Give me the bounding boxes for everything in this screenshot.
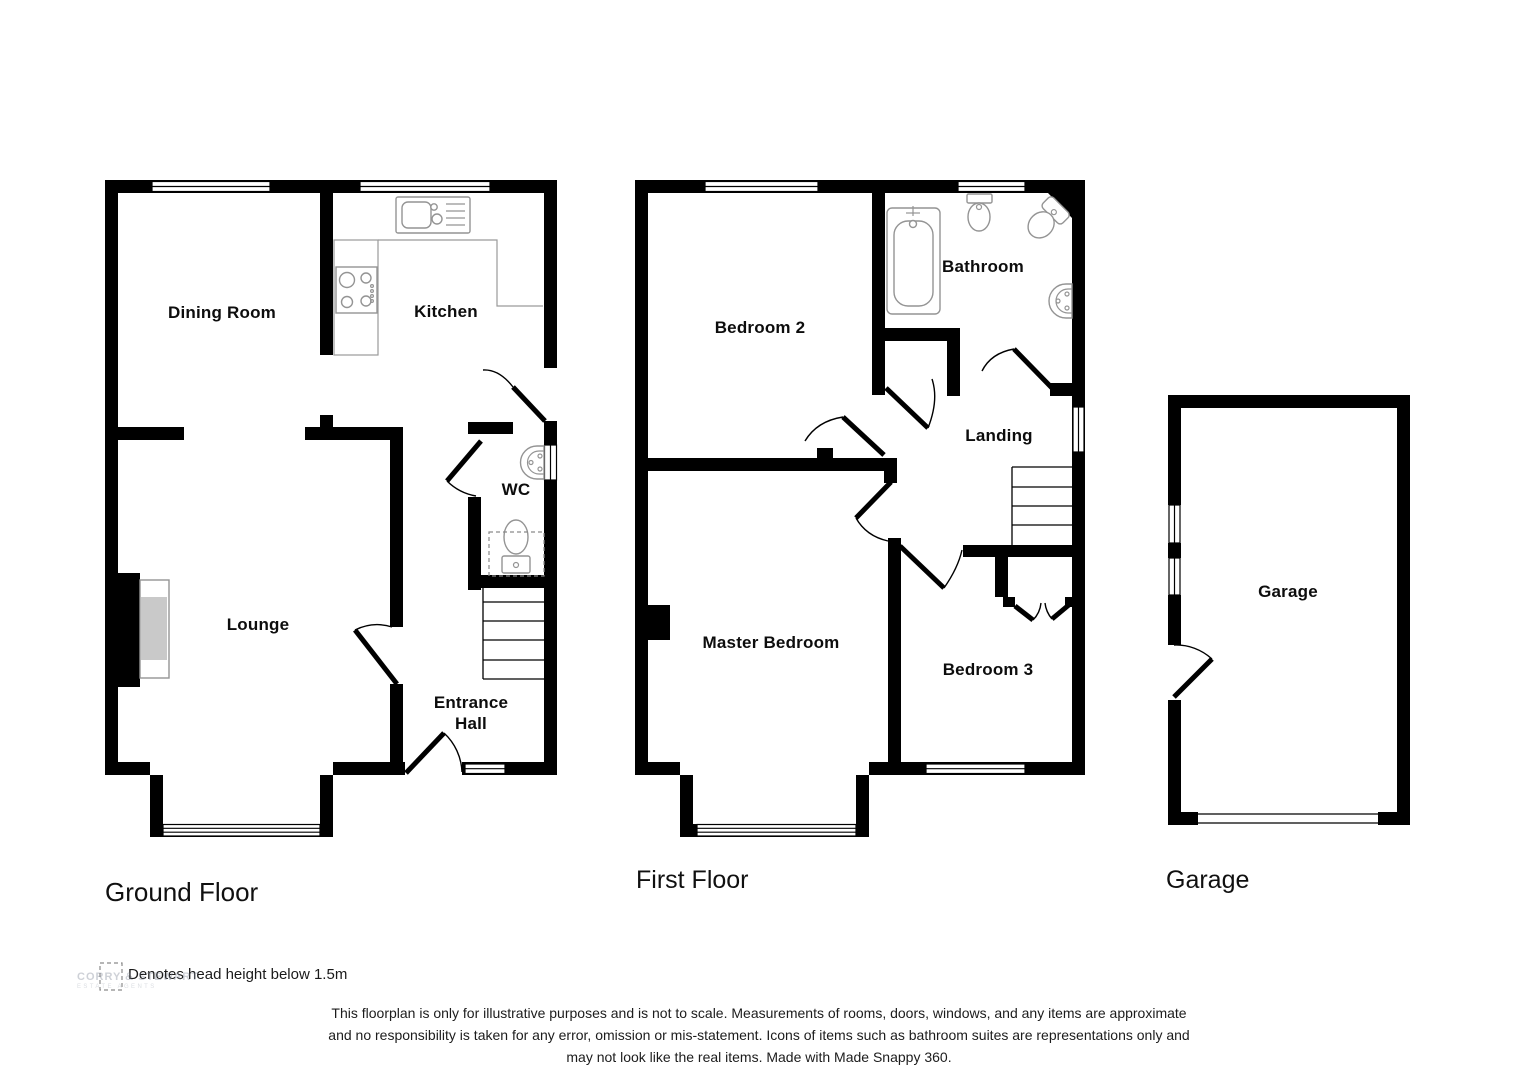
ground-floor-walls	[105, 180, 557, 837]
bathroom-door	[982, 349, 1052, 388]
wc-sink-icon	[521, 446, 545, 479]
cupboard-doors	[1015, 603, 1070, 620]
first-floor-stairs	[1012, 467, 1072, 545]
wc-door	[447, 441, 481, 496]
kitchen-side-door	[483, 370, 545, 421]
bedroom3-hall-door	[900, 546, 962, 588]
entrance-hall-window	[465, 764, 505, 774]
bathroom-sink-icon	[1049, 284, 1072, 318]
floorplan-drawing	[0, 0, 1518, 1080]
kitchen-window	[360, 182, 490, 192]
legend-text: Denotes head height below 1.5m	[128, 966, 347, 983]
garage-walls	[1168, 395, 1410, 825]
lounge-bay-window	[163, 825, 320, 837]
lounge-door	[355, 625, 397, 684]
garage-plan	[1168, 395, 1410, 825]
room-label-landing: Landing	[965, 426, 1033, 446]
room-label-entrance-hall: Entrance Hall	[419, 692, 523, 734]
bedroom2-window	[705, 182, 818, 192]
floorplan-page: Dining Room Kitchen WC Lounge Entrance H…	[0, 0, 1518, 1080]
room-label-dining-room: Dining Room	[168, 303, 276, 323]
stove-icon	[336, 267, 377, 313]
ground-floor-stairs	[483, 588, 544, 679]
bedroom2-door	[805, 379, 935, 455]
master-bedroom-door	[856, 482, 891, 541]
dining-room-window	[152, 182, 270, 192]
toilet-icon	[967, 194, 992, 231]
floor-title-ground: Ground Floor	[105, 877, 258, 908]
garage-door-opening	[1198, 814, 1378, 823]
room-label-bathroom: Bathroom	[942, 257, 1024, 277]
floor-title-garage: Garage	[1166, 866, 1249, 895]
bath-icon	[887, 206, 940, 314]
first-floor-plan	[635, 180, 1085, 837]
garage-window-upper	[1169, 505, 1180, 543]
first-floor-walls	[635, 180, 1085, 837]
garage-side-door	[1174, 645, 1212, 697]
legend-head-height-swatch	[100, 963, 122, 990]
disclaimer: This floorplan is only for illustrative …	[0, 1002, 1518, 1068]
disclaimer-line-3: may not look like the real items. Made w…	[0, 1046, 1518, 1068]
room-label-master-bedroom: Master Bedroom	[703, 633, 840, 653]
disclaimer-line-2: and no responsibility is taken for any e…	[0, 1024, 1518, 1046]
room-label-garage: Garage	[1258, 582, 1318, 602]
room-label-bedroom-2: Bedroom 2	[715, 318, 806, 338]
fireplace-icon	[117, 573, 169, 687]
landing-window	[1073, 407, 1084, 452]
master-bay-window	[697, 825, 856, 837]
garage-window-lower	[1169, 558, 1180, 595]
kitchen-sink-icon	[396, 197, 470, 233]
wc-window	[545, 445, 557, 480]
bedroom3-window	[926, 764, 1025, 774]
room-label-bedroom-3: Bedroom 3	[943, 660, 1034, 680]
ground-floor-plan	[105, 180, 557, 837]
floor-title-first: First Floor	[636, 866, 749, 895]
disclaimer-line-1: This floorplan is only for illustrative …	[0, 1002, 1518, 1024]
room-label-kitchen: Kitchen	[414, 302, 478, 322]
bathroom-window	[958, 182, 1025, 192]
wc-toilet-icon	[502, 520, 530, 573]
room-label-lounge: Lounge	[227, 615, 290, 635]
room-label-wc: WC	[502, 480, 531, 500]
